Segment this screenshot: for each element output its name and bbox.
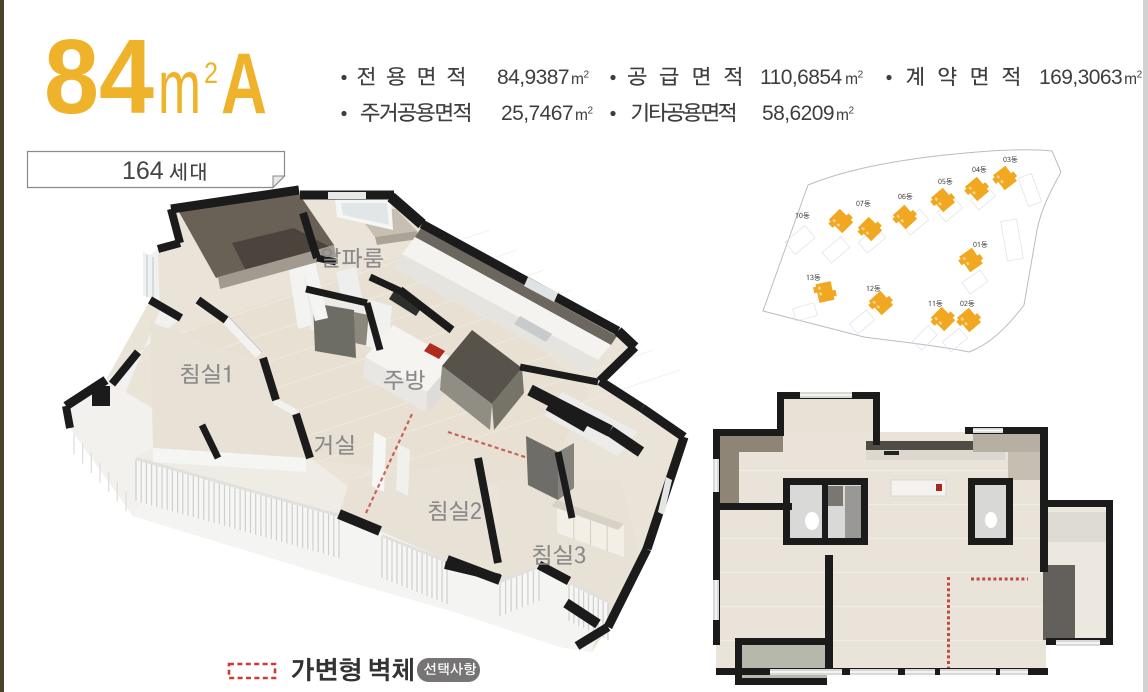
svg-text:2: 2 <box>204 57 218 90</box>
svg-text:2: 2 <box>858 70 864 81</box>
svg-text:m: m <box>158 45 201 130</box>
svg-text:A: A <box>221 36 267 132</box>
svg-text:84,9387: 84,9387 <box>497 66 569 89</box>
svg-text:2: 2 <box>1137 70 1143 81</box>
svg-text:164: 164 <box>122 157 164 185</box>
svg-text:84: 84 <box>44 18 154 136</box>
svg-text:58,6209: 58,6209 <box>762 102 834 125</box>
svg-text:m: m <box>845 71 858 88</box>
svg-text:m: m <box>571 71 584 88</box>
svg-text:m: m <box>575 107 588 124</box>
svg-text:2: 2 <box>849 106 855 117</box>
svg-text:2: 2 <box>584 70 590 81</box>
svg-text:2: 2 <box>588 106 594 117</box>
svg-text:169,3063: 169,3063 <box>1039 66 1122 89</box>
svg-text:25,7467: 25,7467 <box>501 102 573 125</box>
svg-text:m: m <box>836 107 849 124</box>
svg-text:110,6854: 110,6854 <box>760 66 843 89</box>
svg-text:m: m <box>1124 71 1137 88</box>
